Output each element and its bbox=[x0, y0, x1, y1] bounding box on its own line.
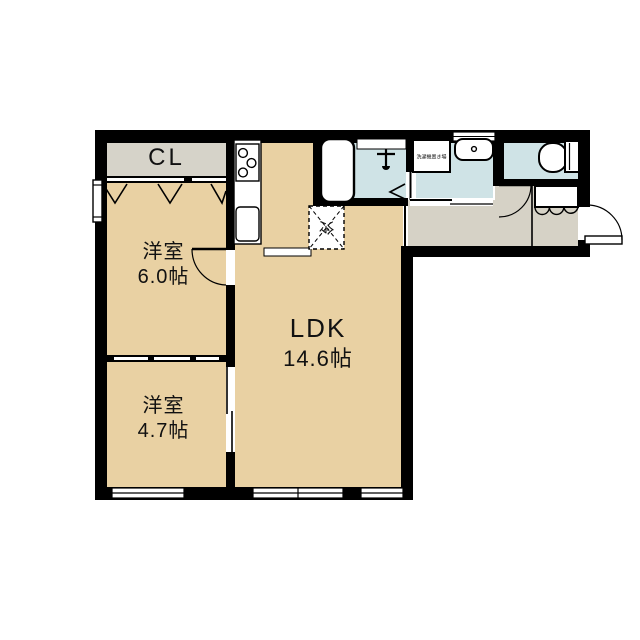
kitchen-counter bbox=[234, 140, 261, 244]
entrance-door-icon bbox=[585, 205, 622, 244]
bedroom2-label: 洋室 4.7帖 bbox=[107, 394, 220, 444]
closet-label: CL bbox=[107, 143, 226, 173]
stove-icon bbox=[236, 144, 259, 181]
bedroom2-size: 4.7帖 bbox=[107, 419, 220, 444]
bedroom1-name: 洋室 bbox=[107, 240, 220, 265]
bedroom2-sliding-door-icon bbox=[227, 367, 232, 452]
floorplan: 冷 洗濯機置き場 bbox=[0, 0, 640, 640]
bathtub-icon bbox=[321, 139, 354, 202]
refrigerator-label: 冷 bbox=[317, 220, 334, 235]
ldk-name: LDK bbox=[233, 312, 403, 345]
kitchen-edge-line bbox=[264, 248, 311, 256]
refrigerator-icon: 冷 bbox=[309, 206, 344, 249]
bath-faucet-icon bbox=[357, 139, 406, 170]
vanity-sink-icon bbox=[455, 139, 493, 160]
ldk-window-right-icon bbox=[361, 488, 403, 498]
toilet-door-icon bbox=[499, 185, 531, 217]
kitchen-sink-icon bbox=[236, 207, 259, 241]
bedroom2-window-icon bbox=[112, 488, 184, 498]
ldk-window-left-icon bbox=[253, 488, 343, 498]
bath-door-arrow-icon bbox=[390, 184, 405, 199]
closet-folding-door-icon bbox=[103, 184, 226, 203]
washroom-sliding-door-icon bbox=[410, 198, 493, 206]
bedroom1-window-icon bbox=[93, 180, 102, 222]
shoe-cabinet-icon bbox=[535, 186, 578, 215]
washing-machine-label: 洗濯機置き場 bbox=[416, 154, 446, 161]
bedroom1-label: 洋室 6.0帖 bbox=[107, 240, 220, 290]
washing-machine-icon: 洗濯機置き場 bbox=[413, 140, 450, 172]
ldk-size: 14.6帖 bbox=[233, 345, 403, 373]
ldk-label: LDK 14.6帖 bbox=[233, 312, 403, 372]
toilet-icon bbox=[539, 141, 579, 172]
bedroom2-name: 洋室 bbox=[107, 394, 220, 419]
bedroom1-size: 6.0帖 bbox=[107, 265, 220, 290]
